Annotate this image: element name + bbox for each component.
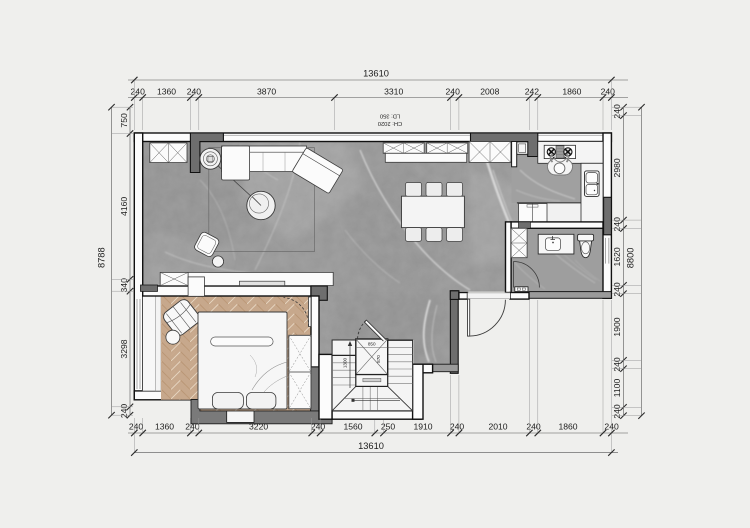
svg-text:1620: 1620 — [612, 247, 622, 266]
svg-text:240: 240 — [604, 422, 619, 432]
svg-text:CH: 2020: CH: 2020 — [378, 120, 403, 126]
svg-text:2980: 2980 — [612, 158, 622, 177]
svg-text:3310: 3310 — [384, 87, 403, 97]
svg-text:1860: 1860 — [558, 422, 577, 432]
svg-text:1360: 1360 — [155, 422, 174, 432]
svg-text:240: 240 — [612, 404, 622, 419]
svg-text:1860: 1860 — [562, 87, 581, 97]
svg-text:2008: 2008 — [480, 87, 499, 97]
svg-text:240: 240 — [526, 422, 541, 432]
svg-text:LD: 350: LD: 350 — [380, 113, 400, 119]
svg-text:250: 250 — [381, 422, 396, 432]
svg-text:3870: 3870 — [257, 87, 276, 97]
svg-text:240: 240 — [612, 104, 622, 119]
svg-text:242: 242 — [525, 87, 540, 97]
svg-text:3220: 3220 — [249, 422, 268, 432]
svg-text:1900: 1900 — [612, 317, 622, 336]
svg-text:8788: 8788 — [97, 247, 107, 268]
svg-text:2010: 2010 — [488, 422, 507, 432]
svg-text:240: 240 — [119, 404, 129, 419]
svg-text:240: 240 — [446, 87, 461, 97]
svg-text:13610: 13610 — [358, 441, 384, 451]
svg-text:240: 240 — [450, 422, 465, 432]
svg-text:13610: 13610 — [363, 69, 389, 79]
svg-text:1560: 1560 — [343, 422, 362, 432]
svg-text:1100: 1100 — [612, 379, 622, 398]
svg-text:340: 340 — [119, 278, 129, 293]
svg-text:4160: 4160 — [119, 197, 129, 216]
svg-text:240: 240 — [612, 282, 622, 297]
svg-text:240: 240 — [131, 87, 146, 97]
svg-text:1300: 1300 — [343, 357, 348, 368]
svg-text:8800: 8800 — [626, 248, 636, 269]
svg-text:240: 240 — [187, 87, 202, 97]
svg-text:750: 750 — [119, 113, 129, 128]
svg-text:240: 240 — [311, 422, 326, 432]
svg-text:850: 850 — [368, 342, 376, 347]
svg-text:240: 240 — [612, 357, 622, 372]
svg-text:1360: 1360 — [157, 87, 176, 97]
svg-text:240: 240 — [185, 422, 200, 432]
svg-text:240: 240 — [612, 217, 622, 232]
svg-text:240: 240 — [601, 87, 616, 97]
svg-text:240: 240 — [129, 422, 144, 432]
svg-text:1910: 1910 — [413, 422, 432, 432]
svg-text:3298: 3298 — [119, 339, 129, 358]
svg-text:870: 870 — [376, 355, 381, 363]
